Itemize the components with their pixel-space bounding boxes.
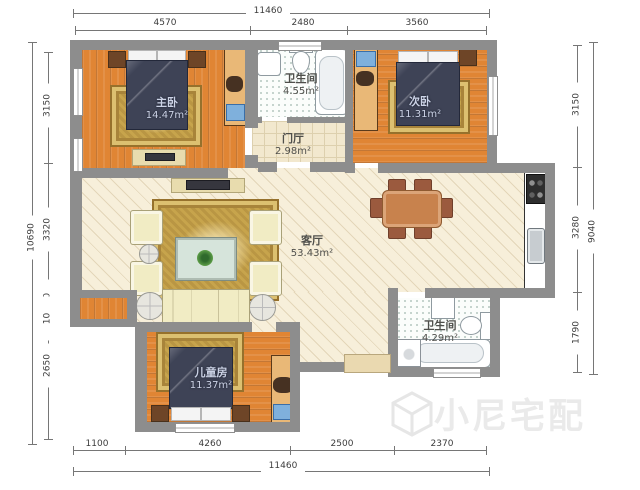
kids-pillow <box>171 407 201 421</box>
wall <box>300 362 344 372</box>
dim-tick <box>573 292 582 293</box>
nightstand <box>459 49 477 66</box>
nightstand <box>188 51 206 68</box>
room-name: 次卧 <box>385 95 455 108</box>
window <box>488 76 498 136</box>
dim-label: 2480 <box>281 18 325 29</box>
floor-plan-canvas: 主卧 14.47m² 卫生间 4.55m² 次卧 11.31m² 门厅 2.98… <box>0 0 640 490</box>
dim-label: 3560 <box>395 18 439 29</box>
room-label-bathroom1: 卫生间 4.55m² <box>266 72 336 98</box>
side-table <box>249 294 276 321</box>
room-label-kids-room: 儿童房 11.37m² <box>176 366 246 392</box>
dim-tick <box>73 446 74 455</box>
room-area: 4.29m² <box>405 332 475 345</box>
dim-tick <box>573 45 582 46</box>
plant-icon <box>197 250 213 266</box>
storage-box <box>356 51 376 67</box>
wall <box>310 162 345 172</box>
side-table <box>139 244 159 264</box>
dim-line-top-segments <box>75 30 487 31</box>
dim-tick <box>75 26 76 35</box>
dim-tick <box>573 167 582 168</box>
dim-tick <box>73 467 74 476</box>
room-area: 53.43m² <box>277 247 347 260</box>
wall <box>290 332 300 432</box>
watermark-cube-logo-icon <box>390 390 434 438</box>
dim-tick <box>28 42 37 43</box>
wall <box>378 163 497 173</box>
wall <box>497 163 555 173</box>
wall <box>388 288 398 298</box>
entry-threshold <box>344 354 391 373</box>
nightstand <box>232 405 250 422</box>
dim-tick <box>489 467 490 476</box>
dim-label: 2500 <box>320 439 364 450</box>
bathtub-basin <box>416 343 484 363</box>
room-label-living-room: 客厅 53.43m² <box>277 234 347 260</box>
bathroom2-sink-icon <box>431 297 455 319</box>
watermark-text: 小尼宅配 <box>434 388 586 439</box>
wall <box>287 117 345 123</box>
room-name: 儿童房 <box>176 366 246 379</box>
dim-tick <box>589 42 598 43</box>
dim-label: 2370 <box>420 439 464 450</box>
dim-label: 2650 <box>43 344 54 388</box>
dim-label: 3280 <box>572 206 583 250</box>
clothes-pile <box>226 76 243 92</box>
tv-icon <box>186 180 230 190</box>
window <box>278 41 322 51</box>
room-name: 卫生间 <box>266 72 336 85</box>
dim-tick <box>125 446 126 455</box>
dim-line-bottom-segments <box>73 450 487 451</box>
dim-line-right-total <box>593 42 594 375</box>
side-table <box>136 292 164 320</box>
window <box>175 423 235 433</box>
dim-label-right-total: 9040 <box>588 210 599 254</box>
dim-tick <box>73 9 74 18</box>
dim-label-bottom-total: 11460 <box>261 461 305 472</box>
window <box>73 68 83 116</box>
wall <box>345 50 353 173</box>
sofa <box>162 289 250 323</box>
dim-label: 10 <box>43 297 54 341</box>
dim-tick <box>394 446 395 455</box>
dim-tick <box>489 9 490 18</box>
storage-box <box>226 104 245 121</box>
nightstand <box>151 405 169 422</box>
dim-label: 4260 <box>188 439 232 450</box>
dresser-tv-icon <box>145 153 175 161</box>
wall <box>258 162 277 172</box>
kids-pillow <box>201 407 231 421</box>
room-label-bathroom2: 卫生间 4.29m² <box>405 319 475 345</box>
room-area: 11.31m² <box>385 108 455 121</box>
room-name: 卫生间 <box>405 319 475 332</box>
nightstand <box>108 51 126 68</box>
window <box>433 368 481 378</box>
room-label-master-bedroom: 主卧 14.47m² <box>132 96 202 122</box>
dim-tick <box>573 372 582 373</box>
dining-table <box>382 190 442 228</box>
stove-icon <box>526 174 546 204</box>
wall <box>135 332 147 422</box>
dim-tick <box>28 444 37 445</box>
room-label-second-bedroom: 次卧 11.31m² <box>385 95 455 121</box>
dim-label: 3320 <box>43 208 54 252</box>
dim-tick <box>44 439 53 440</box>
wall <box>545 173 555 298</box>
dim-tick <box>290 446 291 455</box>
wall <box>490 298 500 367</box>
wall <box>245 155 258 168</box>
dim-tick <box>486 26 487 35</box>
room-label-foyer: 门厅 2.98m² <box>258 132 328 158</box>
alcove-niche-floor <box>80 298 127 319</box>
wall <box>276 322 300 332</box>
armchair <box>130 210 163 245</box>
room-name: 门厅 <box>258 132 328 145</box>
room-area: 4.55m² <box>266 85 336 98</box>
dim-label-top-total: 11460 <box>246 6 290 17</box>
dim-label: 4570 <box>143 18 187 29</box>
dim-tick <box>347 26 348 35</box>
clothes-pile <box>356 71 374 86</box>
watermark: 小尼宅配 <box>390 388 586 439</box>
dim-label: 1100 <box>75 439 119 450</box>
kitchen-sink-icon <box>527 228 545 264</box>
wall <box>135 322 252 332</box>
dim-tick <box>486 446 487 455</box>
dim-label-left-total: 10690 <box>27 216 38 260</box>
wall <box>250 117 262 123</box>
dim-tick <box>44 52 53 53</box>
dim-label: 3150 <box>43 84 54 128</box>
dim-tick <box>589 374 598 375</box>
wall <box>82 168 228 178</box>
armchair <box>249 261 282 296</box>
window <box>73 138 83 172</box>
dim-label: 1790 <box>572 311 583 355</box>
dim-tick <box>44 163 53 164</box>
dim-tick <box>250 26 251 35</box>
room-area: 11.37m² <box>176 379 246 392</box>
dim-label: 3150 <box>572 83 583 127</box>
room-area: 14.47m² <box>132 109 202 122</box>
room-name: 客厅 <box>277 234 347 247</box>
wall <box>345 163 355 173</box>
wall <box>425 288 555 298</box>
room-area: 2.98m² <box>258 145 328 158</box>
room-name: 主卧 <box>132 96 202 109</box>
